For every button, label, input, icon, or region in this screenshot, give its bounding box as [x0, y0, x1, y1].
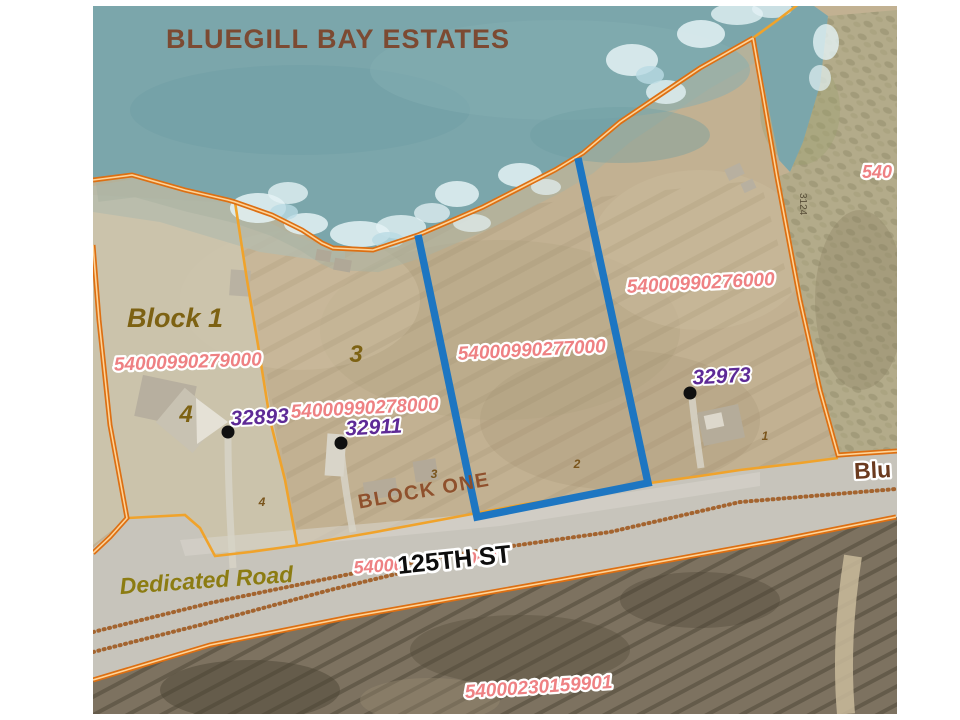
lot-number-large-3: 3	[349, 341, 363, 368]
lot-number-small-1: 1	[762, 429, 769, 443]
gis-map-window: 54000 000 125TH ST 54000990279000 540009…	[0, 0, 960, 720]
parcel-label-partial-edge[interactable]: 540	[862, 162, 892, 182]
address-label-32911: 32911	[345, 415, 403, 441]
lot-number-small-2: 2	[573, 457, 581, 471]
lot-number-small-4: 4	[258, 495, 266, 509]
lot-number-small-3: 3	[431, 467, 438, 481]
map-title: BLUEGILL BAY ESTATES	[166, 24, 510, 54]
street-label-bluegill-partial: Blu	[853, 456, 891, 484]
address-label-32893: 32893	[230, 404, 290, 430]
survey-number-label: 3124	[797, 193, 808, 216]
dirt-path	[844, 556, 853, 714]
lot-number-large-4: 4	[178, 401, 192, 428]
parcel-map: 54000 000 125TH ST 54000990279000 540009…	[0, 0, 960, 720]
address-label-32973: 32973	[692, 363, 752, 389]
block1-label: Block 1	[127, 303, 223, 333]
